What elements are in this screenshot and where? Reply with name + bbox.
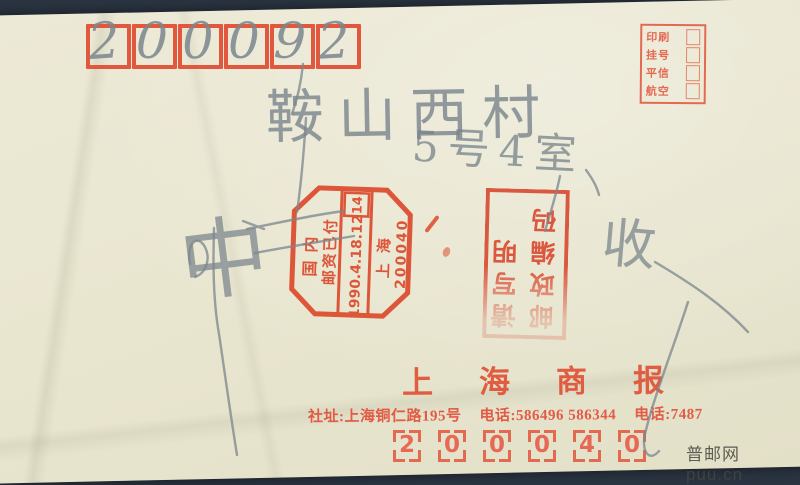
mail-type-tickbox	[686, 83, 700, 99]
sender-info-line: 社址:上海铜仁路195号 电话:586496 586344 电话:7487	[308, 403, 708, 427]
mail-type-label: 航空	[646, 83, 670, 99]
handwritten-big-char: 中	[175, 211, 273, 309]
sender-postcode-digit: 0	[618, 432, 646, 458]
postmark-machine-no: 14	[350, 196, 366, 215]
sender-postcode-digit: 2	[393, 432, 421, 458]
mail-type-row: 航空	[646, 83, 700, 99]
write-postcode-stamp: 请写明 邮政编码	[482, 188, 570, 340]
postage-paid-postmark: 国内 邮资已付 1990.4.18.12 14 上海 200040	[288, 184, 415, 320]
sender-postcode-box: 0	[618, 430, 646, 462]
mail-type-label: 平信	[646, 65, 670, 81]
sender-postcode-digit: 4	[573, 432, 601, 458]
mail-type-tickbox	[686, 47, 700, 63]
mail-type-tickbox	[686, 29, 700, 45]
handwritten-postcode-digit: 2	[86, 15, 121, 67]
handwritten-receive-char: 收	[600, 216, 659, 275]
handwritten-address-line2: 5号4室	[411, 125, 586, 176]
sender-postcode-digit: 0	[438, 432, 466, 458]
sender-postcode-digit: 0	[483, 432, 511, 458]
sender-phone2: 电话:7487	[634, 403, 703, 424]
sender-phone: 电话:586496 586344	[479, 403, 616, 425]
mail-type-row: 印刷	[646, 29, 700, 45]
mail-type-row: 挂号	[646, 47, 700, 63]
write-postcode-stamp-col-right: 请写明	[493, 232, 521, 329]
red-ink-tick	[424, 215, 439, 233]
sender-postcode-box: 0	[528, 430, 556, 462]
postmark-zone-code: 200040	[393, 218, 411, 289]
red-ink-smudge	[442, 246, 452, 258]
handwritten-postcode-digit: 0	[181, 15, 215, 66]
mail-type-box: 印刷挂号平信航空	[640, 24, 707, 105]
sender-postcode-digit: 0	[528, 432, 556, 458]
postmark-date: 1990.4.18.12	[347, 214, 367, 318]
sender-postcode-box: 0	[483, 430, 511, 462]
mail-type-tickbox	[686, 65, 700, 81]
newspaper-masthead: 上海商报	[402, 355, 710, 403]
mail-type-row: 平信	[646, 65, 700, 81]
handwritten-postcode-digit: 0	[228, 16, 260, 66]
collector-watermark: 普邮网 puu.cn	[686, 440, 800, 485]
handwritten-postcode-digit: 2	[317, 15, 351, 67]
handwritten-postcode-digit: 0	[135, 15, 169, 66]
postmark-line2: 邮资已付	[320, 217, 340, 286]
handwritten-postcode-digit: 9	[273, 15, 307, 67]
sender-postcode-box: 4	[573, 430, 601, 462]
postmark-city: 上海	[374, 228, 394, 279]
sender-postcode-box: 2	[393, 430, 421, 462]
mail-type-label: 印刷	[646, 29, 670, 45]
sender-postcode-box: 0	[438, 430, 466, 462]
postmark-line1: 国内	[300, 228, 321, 277]
sender-address: 社址:上海铜仁路195号	[308, 404, 462, 426]
write-postcode-stamp-col-left: 邮政编码	[531, 201, 559, 330]
mail-type-label: 挂号	[646, 47, 670, 63]
